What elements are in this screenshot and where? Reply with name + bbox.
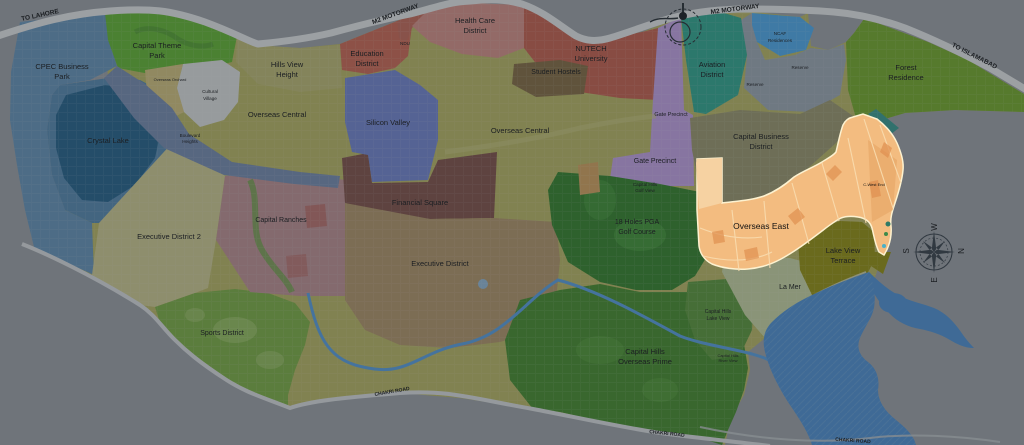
svg-text:Overseas East: Overseas East <box>733 221 789 231</box>
svg-text:C-West End: C-West End <box>863 182 885 187</box>
